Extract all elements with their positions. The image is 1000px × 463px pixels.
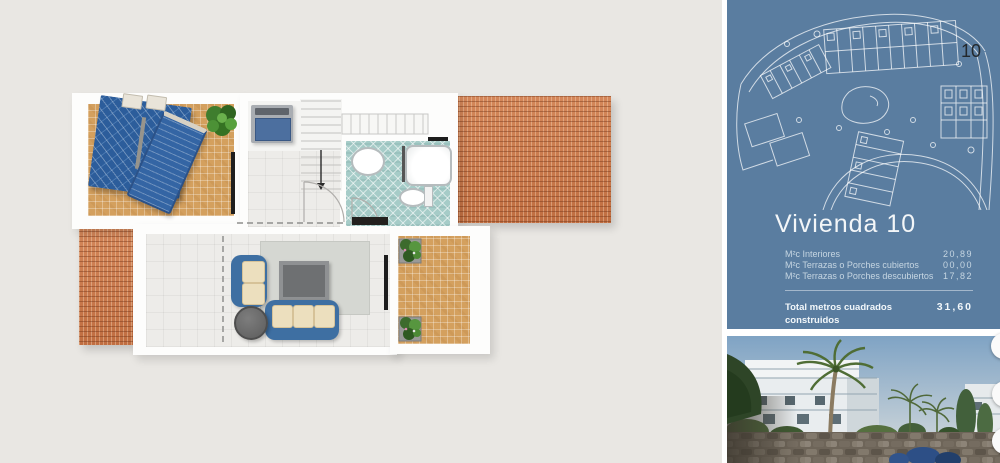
- development-photo: [727, 336, 1000, 463]
- cushion: [293, 305, 314, 328]
- area-label: M²c Terrazas o Porches cubiertos: [785, 260, 919, 271]
- unit-title: Vivienda 10: [775, 210, 995, 239]
- area-value: 20,89: [943, 249, 973, 260]
- total-value: 31,60: [937, 301, 973, 327]
- toilet: [399, 188, 427, 207]
- total-label: Total metros cuadrados construidos: [785, 301, 937, 327]
- siteplan-map: 10: [727, 0, 1000, 210]
- photo-render: [727, 336, 1000, 463]
- cushion: [242, 283, 265, 305]
- loveseat: [231, 255, 267, 307]
- sink: [351, 147, 385, 176]
- toilet-tank: [424, 186, 433, 207]
- info-panel: 10 Vivienda 10 M²c Interiores 20,89 M²c …: [722, 0, 1000, 463]
- info-panel-blue: 10 Vivienda 10 M²c Interiores 20,89 M²c …: [727, 0, 1000, 329]
- area-label: M²c Terrazas o Porches descubiertos: [785, 271, 933, 282]
- divider-line: [785, 290, 973, 291]
- cushion: [272, 305, 293, 328]
- sofa: [265, 300, 339, 340]
- roof-left: [79, 226, 136, 345]
- terrace-right-tiles: [398, 236, 470, 344]
- area-row: M²c Terrazas o Porches descubiertos 17,8…: [785, 271, 973, 282]
- bench-pad: [121, 93, 143, 110]
- area-row: M²c Interiores 20,89: [785, 249, 973, 260]
- coffee-table: [279, 261, 329, 301]
- area-label: M²c Interiores: [785, 249, 840, 260]
- roof-right: [455, 96, 611, 223]
- cushion: [242, 261, 265, 283]
- total-row: Total metros cuadrados construidos 31,60: [785, 301, 973, 327]
- shower-tray: [405, 145, 452, 186]
- bbq-grill: [251, 105, 293, 143]
- area-value: 00,00: [943, 260, 973, 271]
- area-value: 17,82: [943, 271, 973, 282]
- hall-floor: [248, 151, 340, 227]
- brochure-page: 10 Vivienda 10 M²c Interiores 20,89 M²c …: [0, 0, 1000, 463]
- bbq-lid: [255, 108, 289, 115]
- round-side-table: [234, 306, 268, 340]
- area-row: M²c Terrazas o Porches cubiertos 00,00: [785, 260, 973, 271]
- bbq-basin: [255, 118, 291, 141]
- cushion: [314, 305, 335, 328]
- siteplan-unit-number: 10: [961, 41, 981, 61]
- area-table: M²c Interiores 20,89 M²c Terrazas o Porc…: [785, 249, 973, 282]
- bench-pad: [145, 95, 167, 112]
